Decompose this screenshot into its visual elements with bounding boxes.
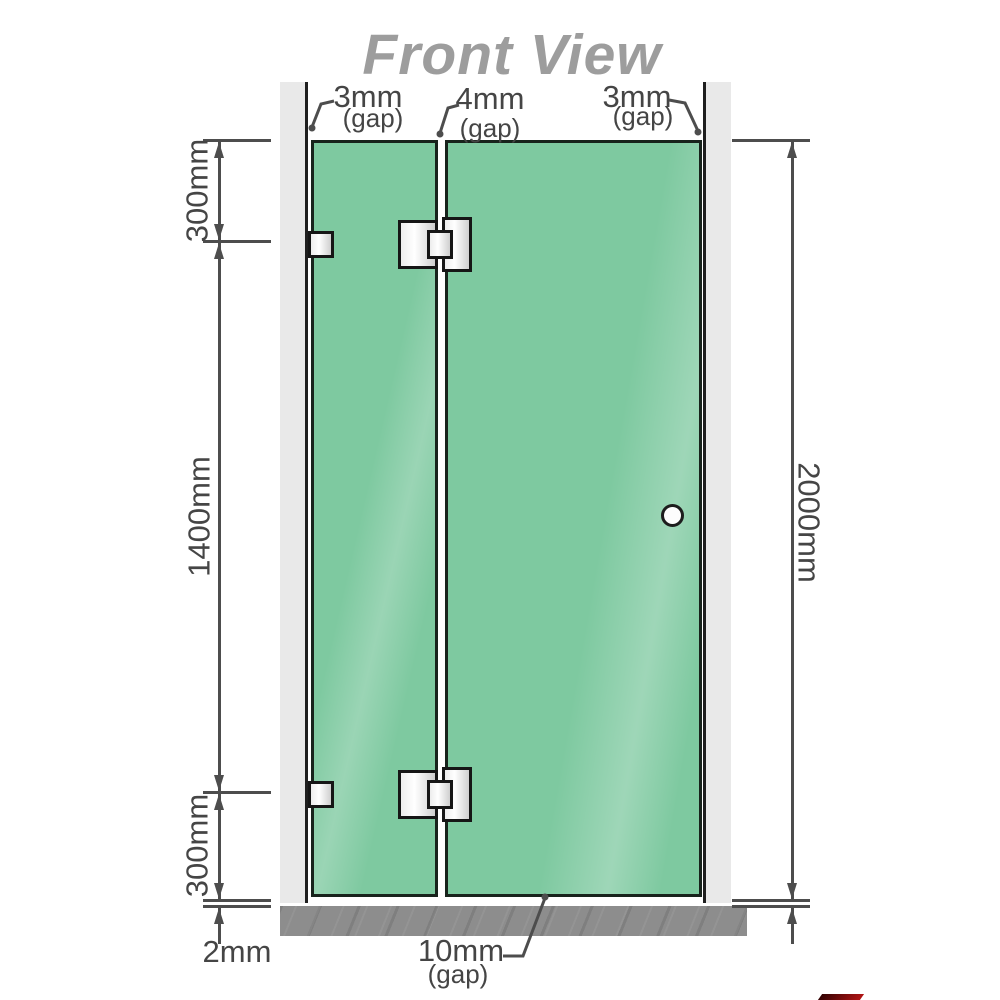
- dimension-arrow-down: [214, 224, 224, 240]
- gap-label-middle-value: 4mm: [430, 83, 550, 114]
- dimension-line: [218, 243, 221, 791]
- hinge-top-knuckle: [427, 230, 453, 259]
- dimension-tick: [732, 139, 810, 142]
- dimension-arrow-down: [214, 775, 224, 791]
- hinge-bottom-knuckle: [427, 780, 453, 809]
- dimension-arrow-up: [787, 142, 797, 158]
- dimension-arrow-down: [787, 883, 797, 899]
- dimension-arrow-up: [214, 243, 224, 259]
- gap-label-left-note: (gap): [313, 105, 433, 131]
- gap-label-middle-note: (gap): [430, 115, 550, 141]
- door-knob: [661, 504, 684, 527]
- dimension-arrow-down: [214, 883, 224, 899]
- right-wall: [703, 82, 731, 903]
- front-view-diagram: Front View 300mm 1400mm 300mm 2000mm 2mm…: [0, 0, 1000, 1000]
- dimension-tick: [732, 899, 810, 902]
- floor-base: [280, 906, 747, 936]
- logo-fragment: [818, 994, 864, 1000]
- dimension-label-1400mm: 1400mm: [184, 447, 215, 587]
- gap-label-bottom-note: (gap): [398, 961, 518, 987]
- gap-label-right-note: (gap): [583, 103, 703, 129]
- wall-bracket-bottom: [308, 781, 334, 808]
- dimension-label-300mm-bottom: 300mm: [182, 776, 213, 916]
- dimension-label-2mm: 2mm: [177, 936, 297, 967]
- dimension-arrow-up: [214, 908, 224, 924]
- dimension-arrow-up: [787, 908, 797, 924]
- dimension-arrow-up: [214, 794, 224, 810]
- dimension-label-2000mm: 2000mm: [794, 453, 825, 593]
- dimension-tick: [203, 899, 271, 902]
- left-wall: [280, 82, 308, 903]
- wall-bracket-top: [308, 231, 334, 258]
- dimension-label-300mm-top: 300mm: [182, 121, 213, 261]
- dimension-arrow-up: [214, 142, 224, 158]
- dimension-tick: [732, 905, 810, 908]
